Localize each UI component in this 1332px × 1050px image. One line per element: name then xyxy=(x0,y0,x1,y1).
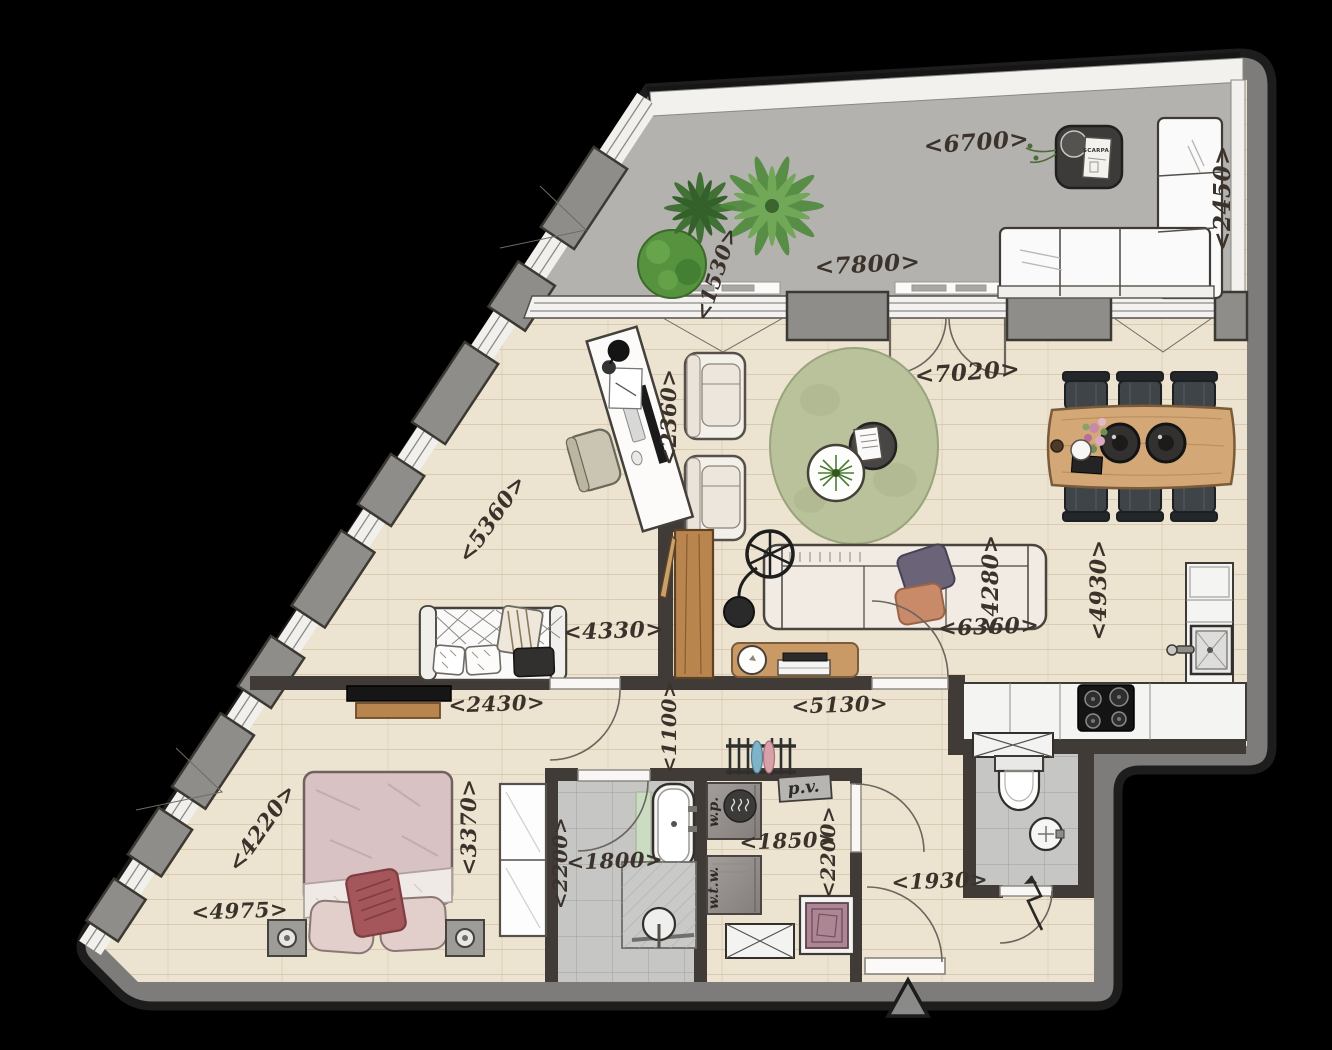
equipment-label-pv: p.v. xyxy=(787,776,821,799)
wall-wc-east xyxy=(1078,750,1094,898)
walk-in-shower xyxy=(622,862,696,948)
dimension-label-3370: <3370> xyxy=(456,779,481,876)
bed-cushion-red xyxy=(345,868,407,938)
armchair-1 xyxy=(685,353,745,439)
dimension-label-1930: <1930> xyxy=(891,866,988,894)
dimension-label-5130: <5130> xyxy=(791,690,888,718)
bedroom-door-leaf xyxy=(550,678,620,689)
equipment-label-scarpa: SCARPA xyxy=(1083,148,1110,154)
shoe-pink xyxy=(764,741,775,773)
nightstand-right xyxy=(446,920,484,956)
pendant-lamp-1 xyxy=(1101,424,1139,462)
coffee-table-white xyxy=(808,445,864,501)
dining-table xyxy=(1048,406,1235,489)
dimension-label-2430: <2430> xyxy=(448,689,545,717)
dimension-label-7800: <7800> xyxy=(814,248,921,280)
living-door-leaf xyxy=(872,678,948,689)
dimension-label-1800: <1800> xyxy=(566,846,663,874)
cooktop xyxy=(1078,685,1134,731)
dining-area xyxy=(1048,372,1235,521)
bedroom-wardrobe xyxy=(500,784,546,936)
wc-basin xyxy=(1030,818,1064,850)
dimension-label-4330: <4330> xyxy=(563,616,665,646)
bench-pillow-1 xyxy=(433,645,465,676)
paper-sheet xyxy=(609,368,642,409)
dimension-label-2450: <2450> xyxy=(1209,145,1236,251)
equipment-label-wtw: w.t.w. xyxy=(706,867,722,909)
hall-bench xyxy=(420,605,566,680)
dimension-label-4930: <4930> xyxy=(1086,539,1112,640)
duct-shaft-kitchen xyxy=(973,733,1053,757)
duct-shaft-tech xyxy=(726,924,794,958)
console-table xyxy=(732,643,858,677)
front-door-leaf xyxy=(865,958,945,974)
equipment-label-wp: w.p. xyxy=(706,797,722,827)
faucet-icon xyxy=(1176,646,1194,653)
dimension-label-2200-hall: <2200> xyxy=(816,806,840,898)
table-knob xyxy=(1051,440,1063,452)
table-cup xyxy=(1071,440,1091,460)
tech-door-leaf xyxy=(851,784,861,852)
dimension-label-6360: <6360> xyxy=(938,612,1040,642)
bench-pillow-2 xyxy=(465,645,501,675)
dimension-label-4975: <4975> xyxy=(191,896,288,924)
washing-machine xyxy=(800,896,854,954)
floor-plan-canvas: w.p.w.t.w.p.v.SCARPA <6700><2450><7800><… xyxy=(0,0,1332,1050)
wall-bath-north-a xyxy=(545,768,578,781)
wall-wc-south-b xyxy=(1050,885,1080,898)
shoe-blue xyxy=(752,741,763,773)
floor-plan-page: w.p.w.t.w.p.v.SCARPA <6700><2450><7800><… xyxy=(0,0,1332,1050)
wc-door-leaf xyxy=(1000,886,1052,896)
dimension-label-2360: <2360> xyxy=(656,369,681,466)
bench-cushion-dark xyxy=(514,647,555,676)
dimension-label-1100: <1100> xyxy=(657,681,681,773)
nightstand-left xyxy=(268,920,306,956)
bathroom-door-leaf xyxy=(578,770,650,781)
scarpa-book xyxy=(1083,137,1112,179)
pendant-lamp-2 xyxy=(1147,424,1185,462)
double-bed xyxy=(304,772,452,954)
armchair-2 xyxy=(685,456,745,540)
tv-shelf xyxy=(356,703,440,718)
wall-tech-east-top xyxy=(850,768,862,784)
